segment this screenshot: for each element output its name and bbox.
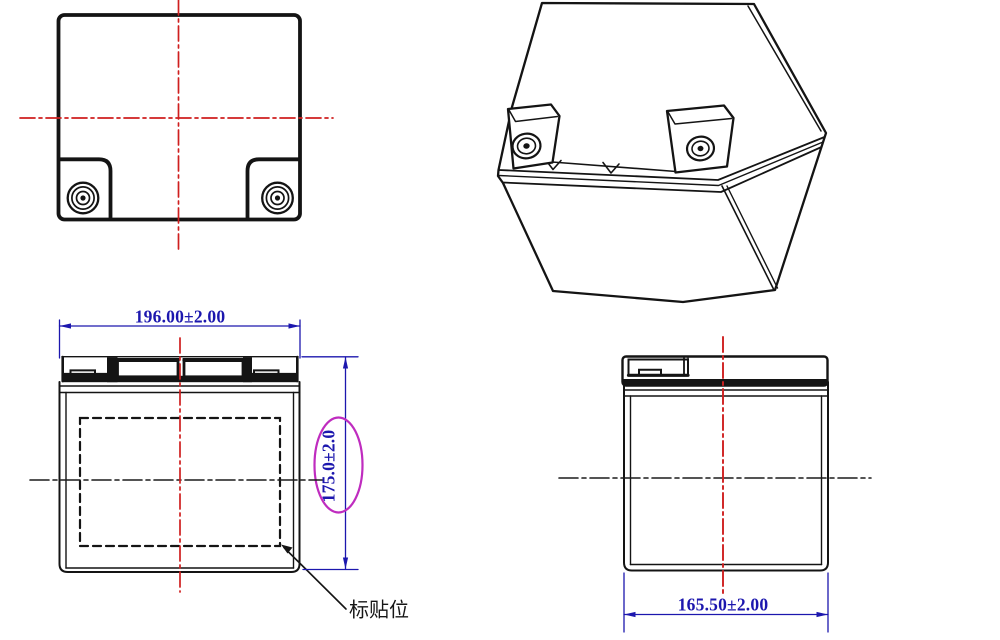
terminal-right [262,183,293,214]
front-view: 标贴位 196.00±2.00 175.0±2.0 [30,307,409,622]
height-dimension-text: 175.0±2.0 [319,430,339,503]
battery-drawing-svg: 标贴位 196.00±2.00 175.0±2.0 [0,0,1000,640]
side-body-outline [624,382,828,571]
depth-dimension-text: 165.50±2.00 [678,595,769,615]
terminal-left [68,183,99,214]
isometric-view [498,3,826,302]
technical-drawing-page: 标贴位 196.00±2.00 175.0±2.0 [0,0,1000,640]
iso-terminal-block-right [667,106,734,173]
top-view [20,0,333,252]
label-leader [281,545,346,610]
width-dimension-text: 196.00±2.00 [135,307,226,327]
label-annotation-text: 标贴位 [349,598,409,622]
side-view: 165.50±2.00 [559,337,871,632]
iso-terminal-block-left [508,105,560,169]
side-lid [623,357,828,386]
